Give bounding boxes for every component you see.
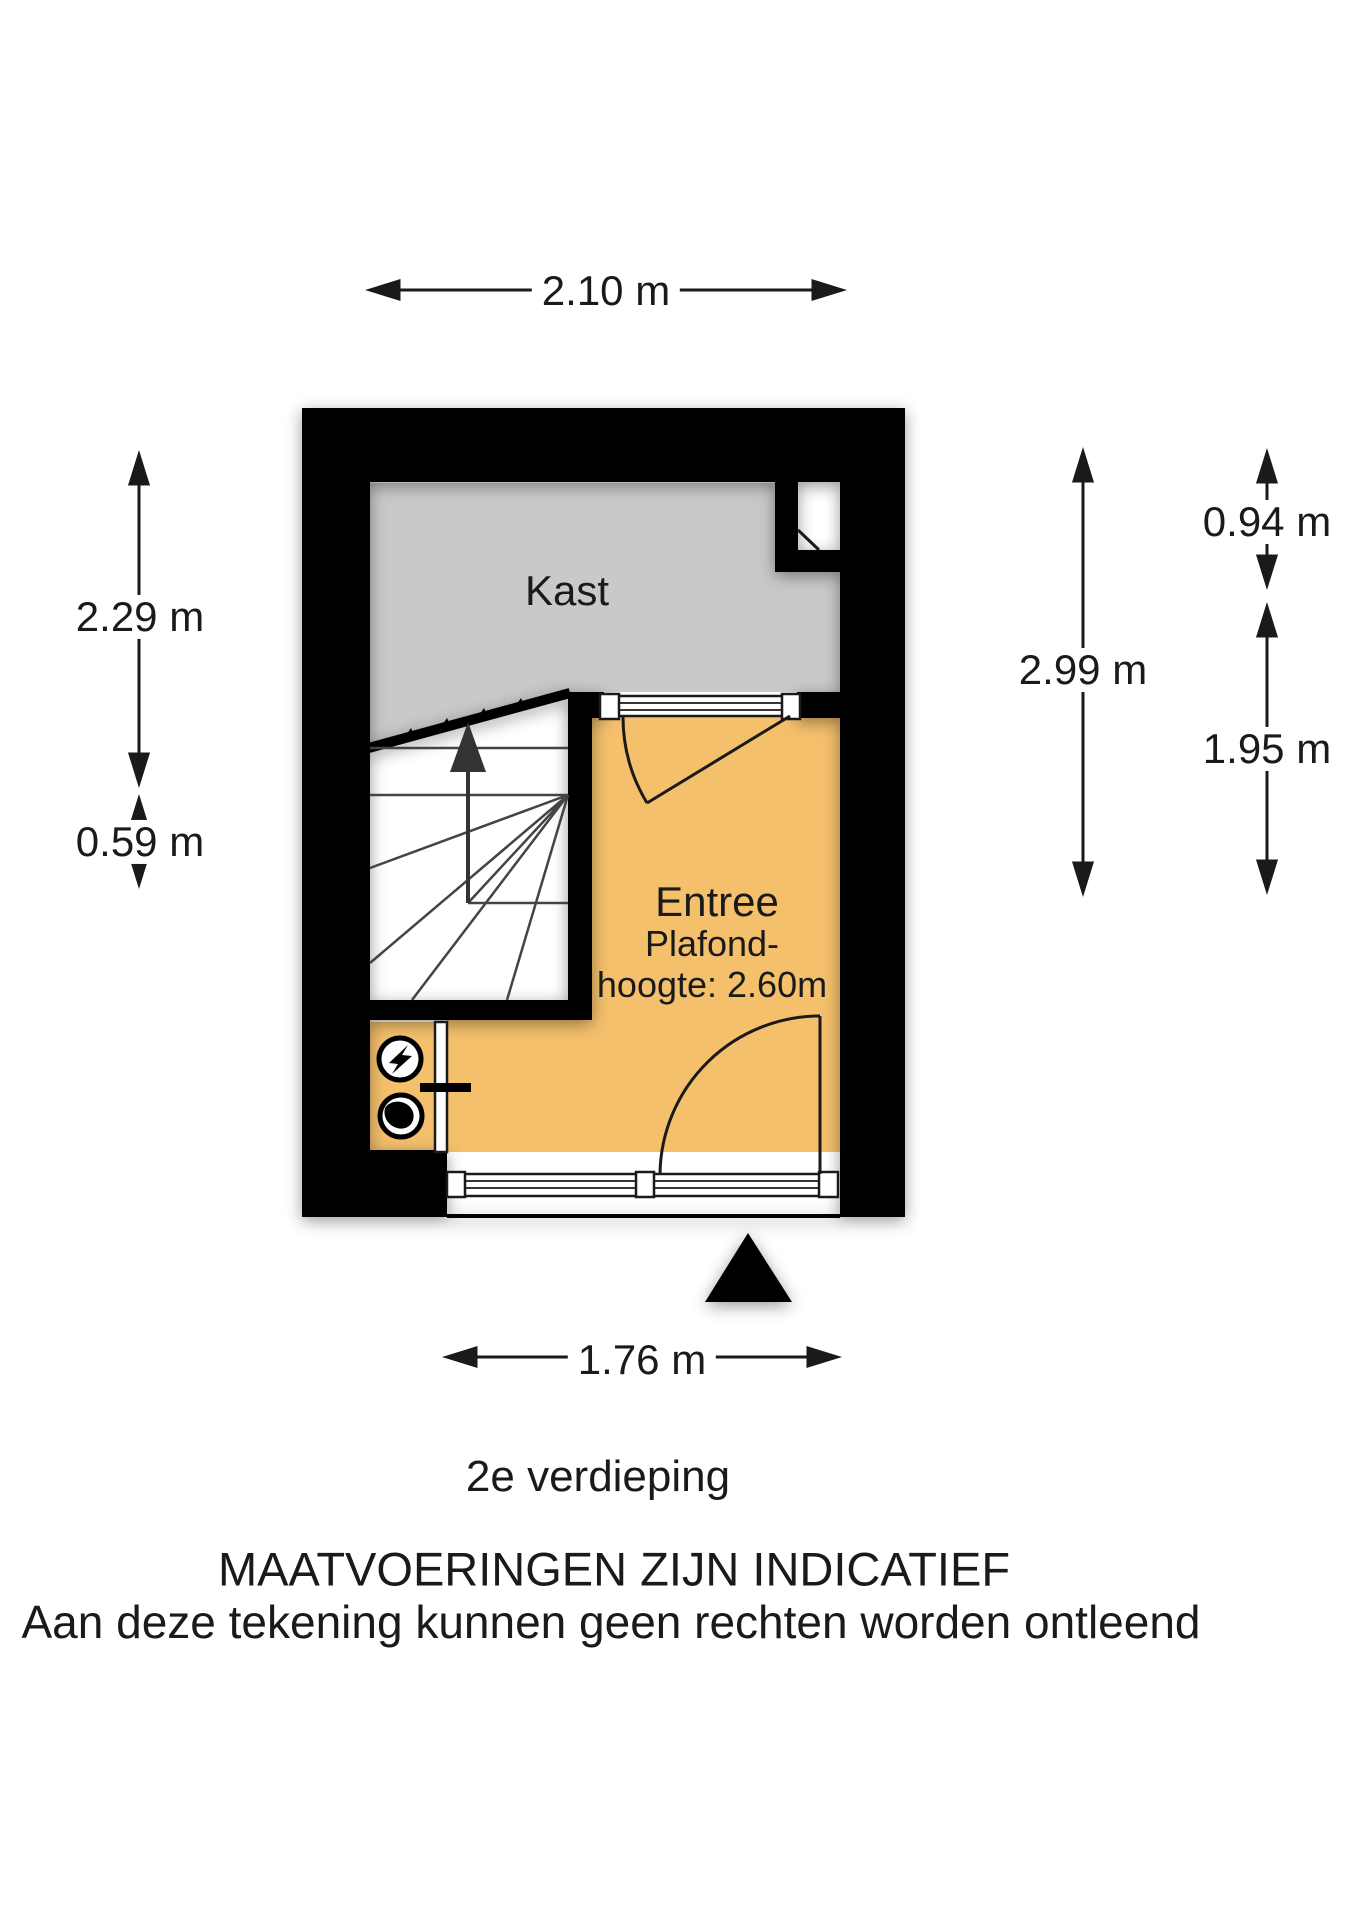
arrowhead-up-icon [1258, 607, 1276, 636]
bottom-post-right [819, 1172, 838, 1197]
wall-left [302, 408, 370, 1150]
top-door-band [604, 696, 797, 716]
stair-winder [412, 795, 568, 1000]
entree-ceiling-line2: hoogte: 2.60m [597, 966, 827, 1004]
room-label-entree: Entree [655, 880, 779, 924]
wall-niche-bottom [775, 550, 840, 572]
dimension-label-left-lower: 0.59 m [66, 820, 214, 864]
bottom-door-band [653, 1174, 820, 1196]
arrowhead-up-icon [130, 455, 148, 484]
disclaimer-line2: Aan deze tekening kunnen geen rechten wo… [21, 1598, 1200, 1646]
wall-stub-door-right [797, 692, 840, 718]
dimension-label-top: 2.10 m [532, 269, 680, 313]
entree-ceiling-line1: Plafond- [645, 925, 779, 963]
wall-stairs-bottom [370, 1000, 592, 1020]
wall-bottom-outer-line [447, 1214, 840, 1218]
wall-top [302, 408, 905, 482]
arrowhead-up-icon [1258, 453, 1276, 482]
arrowhead-left-icon [447, 1348, 476, 1366]
dimension-label-right-full: 2.99 m [1009, 648, 1157, 692]
bottom-post-middle [636, 1172, 654, 1197]
floorplan-page: 2.10 m 2.29 m 0.59 m 2.99 m 0.94 m 1.95 … [0, 0, 1358, 1920]
wall-bottom-left-block [302, 1150, 447, 1217]
arrowhead-left-icon [370, 281, 399, 299]
niche-diagonal-line [798, 530, 819, 550]
wall-stairs-entree [568, 692, 592, 1020]
meter-closet-handle [420, 1083, 471, 1092]
entrance-marker-triangle [705, 1233, 792, 1302]
top-door-post-left [600, 694, 619, 719]
disclaimer-line1: MAATVOERINGEN ZIJN INDICATIEF [218, 1544, 1010, 1593]
water-meter-icon [380, 1095, 422, 1137]
stair-winder [507, 795, 568, 1000]
room-label-kast: Kast [525, 569, 609, 613]
arrowhead-up-icon [1074, 452, 1092, 481]
arrowhead-down-icon [1074, 863, 1092, 892]
dimension-label-bottom: 1.76 m [568, 1338, 716, 1382]
arrowhead-right-icon [813, 281, 842, 299]
arrowhead-down-icon [130, 754, 148, 783]
wall-right [840, 408, 905, 1217]
electric-meter-icon [379, 1038, 421, 1080]
bottom-window-band [464, 1174, 637, 1196]
arrowhead-down-icon [1258, 861, 1276, 890]
dimension-label-right-upper: 0.94 m [1193, 500, 1341, 544]
arrowhead-right-icon [808, 1348, 837, 1366]
dimension-label-left-upper: 2.29 m [66, 595, 214, 639]
bottom-post-left [447, 1172, 465, 1197]
dimension-label-right-lower: 1.95 m [1193, 727, 1341, 771]
floor-title: 2e verdieping [466, 1454, 730, 1500]
top-door-post-right [782, 694, 800, 719]
arrowhead-down-icon [1258, 556, 1276, 585]
